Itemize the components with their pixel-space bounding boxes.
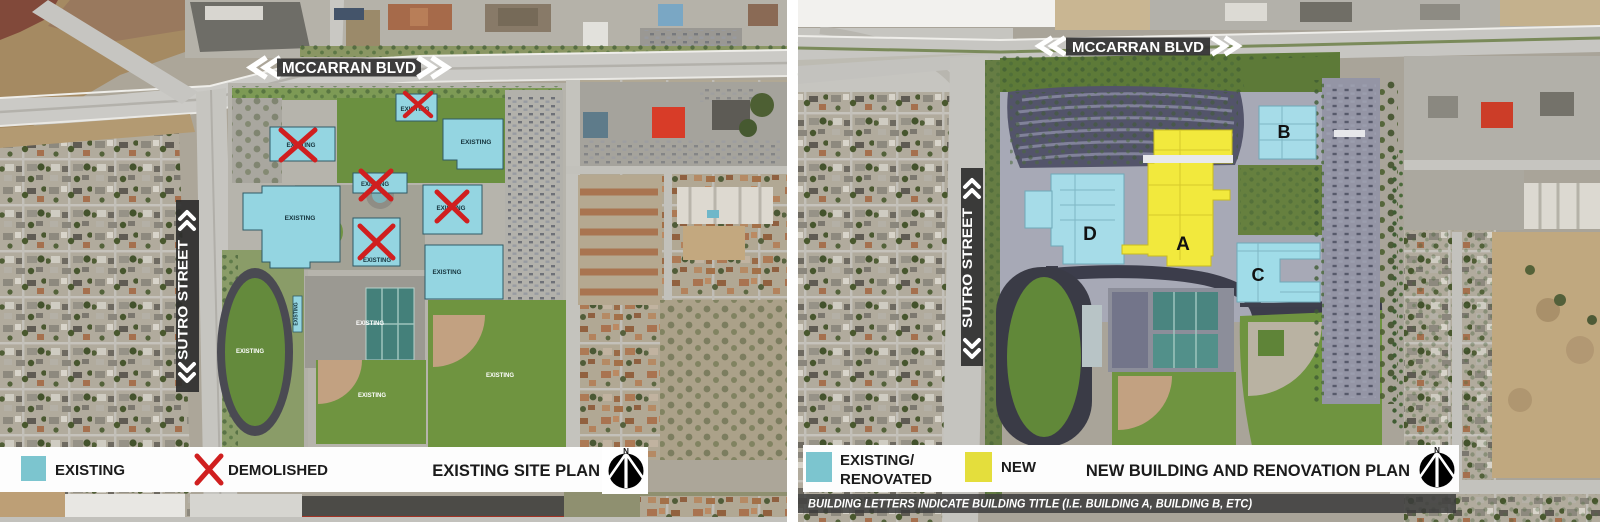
svg-text:NEW: NEW: [1001, 459, 1037, 476]
svg-text:EXISTING/: EXISTING/: [840, 452, 915, 469]
svg-text:D: D: [1083, 224, 1097, 245]
svg-text:EXISTING: EXISTING: [433, 269, 462, 276]
svg-text:EXISTING: EXISTING: [236, 349, 264, 355]
svg-text:EXISTING: EXISTING: [358, 393, 386, 399]
svg-text:EXISTING: EXISTING: [285, 215, 316, 222]
svg-text:SUTRO STREET: SUTRO STREET: [960, 207, 975, 328]
svg-text:EXISTING: EXISTING: [363, 258, 391, 264]
svg-text:MCCARRAN BLVD: MCCARRAN BLVD: [282, 60, 416, 77]
svg-text:NEW BUILDING AND RENOVATION PL: NEW BUILDING AND RENOVATION PLAN: [1086, 462, 1410, 480]
svg-text:EXISTING SITE PLAN: EXISTING SITE PLAN: [432, 462, 600, 480]
svg-text:EXISTING: EXISTING: [486, 373, 514, 379]
svg-text:B: B: [1278, 122, 1291, 142]
svg-text:MCCARRAN BLVD: MCCARRAN BLVD: [1072, 40, 1204, 56]
svg-text:DEMOLISHED: DEMOLISHED: [228, 462, 328, 479]
svg-text:RENOVATED: RENOVATED: [840, 471, 932, 488]
svg-text:C: C: [1252, 265, 1265, 285]
svg-text:EXISTING: EXISTING: [356, 321, 384, 327]
svg-text:EXISTING: EXISTING: [461, 139, 492, 146]
svg-text:EXISTING: EXISTING: [294, 302, 300, 325]
svg-text:A: A: [1176, 234, 1190, 255]
svg-text:BUILDING LETTERS INDICATE BUIL: BUILDING LETTERS INDICATE BUILDING TITLE…: [808, 497, 1252, 511]
svg-text:EXISTING: EXISTING: [55, 462, 125, 479]
svg-text:SUTRO STREET: SUTRO STREET: [175, 240, 191, 360]
